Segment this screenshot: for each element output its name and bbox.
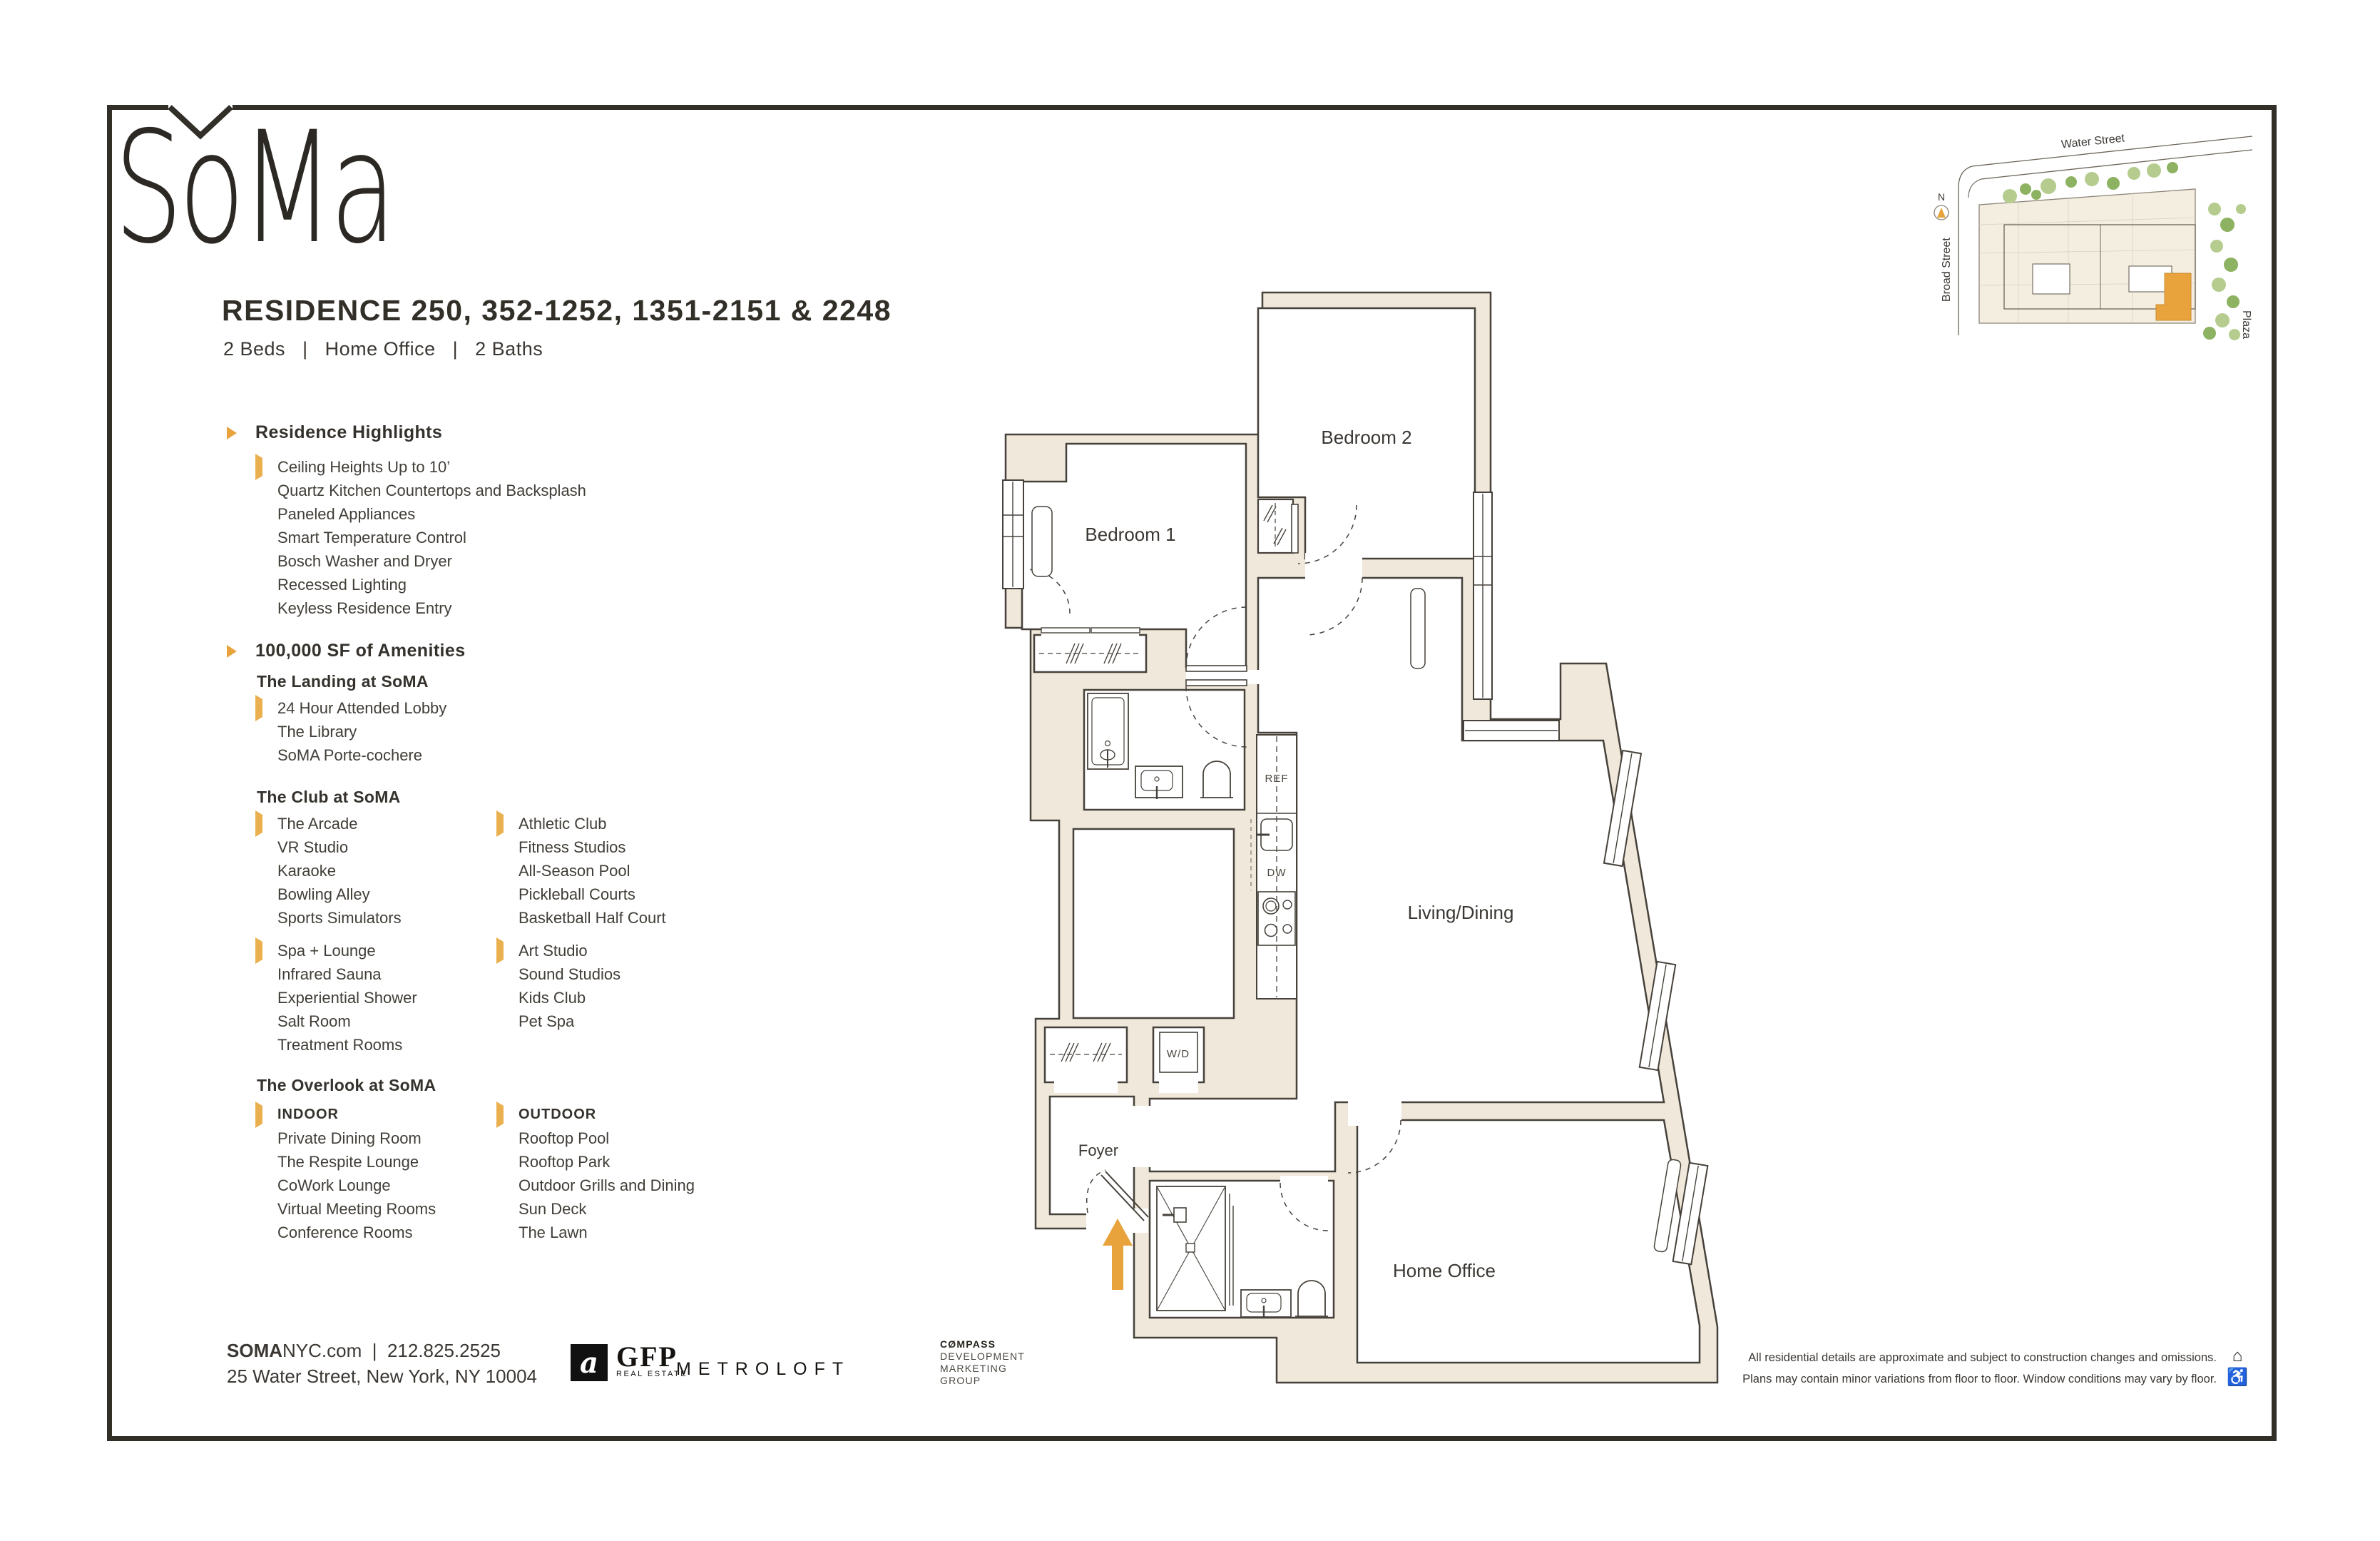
footer-contact: SOMANYC.com | 212.825.2525 bbox=[227, 1340, 501, 1362]
amenities-heading: 100,000 SF of Amenities bbox=[227, 641, 466, 661]
list-item: Karaoke bbox=[255, 859, 402, 883]
list-item: 24 Hour Attended Lobby bbox=[255, 696, 446, 720]
list-item: Art Studio bbox=[496, 939, 620, 962]
bedroom1-label: Bedroom 1 bbox=[1085, 524, 1175, 545]
list-item: The Respite Lounge bbox=[255, 1150, 436, 1174]
plaza-label: Plaza bbox=[2240, 310, 2252, 339]
list-item: Private Dining Room bbox=[255, 1126, 436, 1150]
club-title: The Club at SoMA bbox=[257, 788, 401, 807]
list-item: Basketball Half Court bbox=[496, 906, 666, 930]
list-item: The Library bbox=[255, 720, 446, 743]
list-item: Salt Room bbox=[255, 1009, 417, 1033]
list-item: Bowling Alley bbox=[255, 883, 402, 906]
compass-line: DEVELOPMENT bbox=[940, 1351, 1025, 1363]
brochure-page: { "brand": {"logo_text": "SoMa"}, "heade… bbox=[0, 0, 2380, 1541]
club-col2b: Art Studio Sound Studios Kids Club Pet S… bbox=[496, 939, 620, 1033]
page-title: RESIDENCE 250, 352-1252, 1351-2151 & 224… bbox=[222, 294, 892, 327]
disclaimer: All residential details are approximate … bbox=[1603, 1347, 2217, 1390]
arrow-bullet-icon bbox=[227, 427, 237, 439]
list-item: Conference Rooms bbox=[255, 1221, 436, 1244]
club-col2a: Athletic Club Fitness Studios All-Season… bbox=[496, 812, 666, 930]
list-item: Treatment Rooms bbox=[255, 1033, 417, 1057]
arrow-bullet-icon bbox=[227, 645, 237, 658]
ref-label: REF bbox=[1265, 773, 1289, 785]
bedroom2-label: Bedroom 2 bbox=[1321, 427, 1411, 448]
foyer-label: Foyer bbox=[1078, 1141, 1118, 1159]
overlook-indoor: INDOOR Private Dining Room The Respite L… bbox=[255, 1103, 436, 1244]
list-item: Virtual Meeting Rooms bbox=[255, 1197, 436, 1221]
list-item: Spa + Lounge bbox=[255, 939, 417, 962]
compass-line: MARKETING bbox=[940, 1363, 1025, 1375]
site-map: Water Street Broad Street N Plaza bbox=[1919, 118, 2282, 346]
building-footprint bbox=[1979, 189, 2195, 323]
list-item: Infrared Sauna bbox=[255, 962, 417, 986]
core-block bbox=[2033, 264, 2070, 294]
amenities-label: 100,000 SF of Amenities bbox=[255, 641, 466, 661]
compass-logo: CØMPASS DEVELOPMENT MARKETING GROUP bbox=[940, 1338, 1025, 1387]
home-office-room bbox=[1357, 1120, 1700, 1363]
logo-text: SoMa bbox=[114, 99, 392, 257]
radiator bbox=[1411, 589, 1425, 668]
list-item: INDOOR bbox=[255, 1103, 436, 1126]
toilet bbox=[1203, 761, 1230, 798]
equal-housing-icon: ⌂ bbox=[2227, 1346, 2248, 1367]
list-item: Outdoor Grills and Dining bbox=[496, 1174, 695, 1197]
list-item: Recessed Lighting bbox=[255, 573, 586, 596]
list-item: Rooftop Pool bbox=[496, 1126, 695, 1150]
list-item: Sports Simulators bbox=[255, 906, 402, 930]
club-col1a: The Arcade VR Studio Karaoke Bowling All… bbox=[255, 812, 402, 930]
compass-line: CØMPASS bbox=[940, 1338, 1025, 1351]
floor-plan: REF DW W/D bbox=[999, 278, 1769, 1405]
list-item: The Lawn bbox=[496, 1221, 695, 1244]
home-office-label: Home Office bbox=[1393, 1260, 1496, 1281]
wd-label: W/D bbox=[1167, 1048, 1190, 1060]
disclaimer-line2: Plans may contain minor variations from … bbox=[1603, 1368, 2217, 1390]
list-item: Kids Club bbox=[496, 986, 620, 1009]
accessibility-icon: ♿ bbox=[2227, 1367, 2248, 1388]
dw-label: DW bbox=[1267, 867, 1287, 879]
list-item: Fitness Studios bbox=[496, 835, 666, 859]
list-item: Experiential Shower bbox=[255, 986, 417, 1009]
compass: N bbox=[1934, 191, 1949, 220]
list-item: All-Season Pool bbox=[496, 859, 666, 883]
list-item: Sun Deck bbox=[496, 1197, 695, 1221]
list-item: Paneled Appliances bbox=[255, 502, 586, 526]
list-item: Ceiling Heights Up to 10’ bbox=[255, 455, 586, 479]
phone-number[interactable]: 212.825.2525 bbox=[387, 1340, 501, 1361]
list-item: Bosch Washer and Dryer bbox=[255, 549, 586, 573]
overlook-title: The Overlook at SoMA bbox=[257, 1076, 436, 1095]
broad-street-label: Broad Street bbox=[1941, 238, 1953, 302]
list-item: The Arcade bbox=[255, 812, 402, 835]
gfp-icon: a bbox=[571, 1344, 608, 1381]
soma-logo-area: SoMa bbox=[107, 86, 407, 257]
metroloft-logo: METROLOFT bbox=[676, 1359, 850, 1380]
list-item: Athletic Club bbox=[496, 812, 666, 835]
north-label: N bbox=[1938, 191, 1945, 203]
landing-title: The Landing at SoMA bbox=[257, 672, 429, 691]
list-item: Sound Studios bbox=[496, 962, 620, 986]
housing-icons: ⌂ ♿ bbox=[2227, 1346, 2248, 1388]
building-void bbox=[1073, 829, 1234, 1018]
disclaimer-line1: All residential details are approximate … bbox=[1603, 1347, 2217, 1368]
club-col1b: Spa + Lounge Infrared Sauna Experiential… bbox=[255, 939, 417, 1057]
water-street-label: Water Street bbox=[2060, 132, 2125, 151]
list-item: Pet Spa bbox=[496, 1009, 620, 1033]
kitchen: REF DW bbox=[1251, 735, 1297, 999]
overlook-outdoor: OUTDOOR Rooftop Pool Rooftop Park Outdoo… bbox=[496, 1103, 695, 1244]
list-item: OUTDOOR bbox=[496, 1103, 695, 1126]
list-item: CoWork Lounge bbox=[255, 1174, 436, 1197]
footer-address: 25 Water Street, New York, NY 10004 bbox=[227, 1365, 537, 1388]
list-item: VR Studio bbox=[255, 835, 402, 859]
window-bench bbox=[1032, 507, 1052, 576]
list-item: Pickleball Courts bbox=[496, 883, 666, 906]
residence-highlights-label: Residence Highlights bbox=[255, 422, 442, 443]
list-item: Rooftop Park bbox=[496, 1150, 695, 1174]
residence-highlights-list: Ceiling Heights Up to 10’ Quartz Kitchen… bbox=[255, 455, 586, 620]
list-item: Smart Temperature Control bbox=[255, 526, 586, 549]
list-item: Keyless Residence Entry bbox=[255, 596, 586, 620]
gfp-logo: a GFP REAL ESTATE bbox=[571, 1344, 688, 1381]
page-subtitle: 2 Beds | Home Office | 2 Baths bbox=[223, 338, 543, 360]
sink bbox=[1241, 1290, 1291, 1317]
list-item: SoMA Porte-cochere bbox=[255, 743, 446, 767]
landing-list: 24 Hour Attended Lobby The Library SoMA … bbox=[255, 696, 446, 767]
living-label: Living/Dining bbox=[1408, 902, 1514, 923]
residence-highlights-heading: Residence Highlights bbox=[227, 422, 442, 443]
bedroom1-door-leaf bbox=[1186, 666, 1247, 671]
list-item: Quartz Kitchen Countertops and Backsplas… bbox=[255, 479, 586, 502]
compass-line: GROUP bbox=[940, 1375, 1025, 1387]
bathroom1-door-leaf bbox=[1186, 680, 1247, 686]
toilet bbox=[1298, 1281, 1325, 1316]
website-link[interactable]: SOMANYC.com bbox=[227, 1340, 362, 1361]
